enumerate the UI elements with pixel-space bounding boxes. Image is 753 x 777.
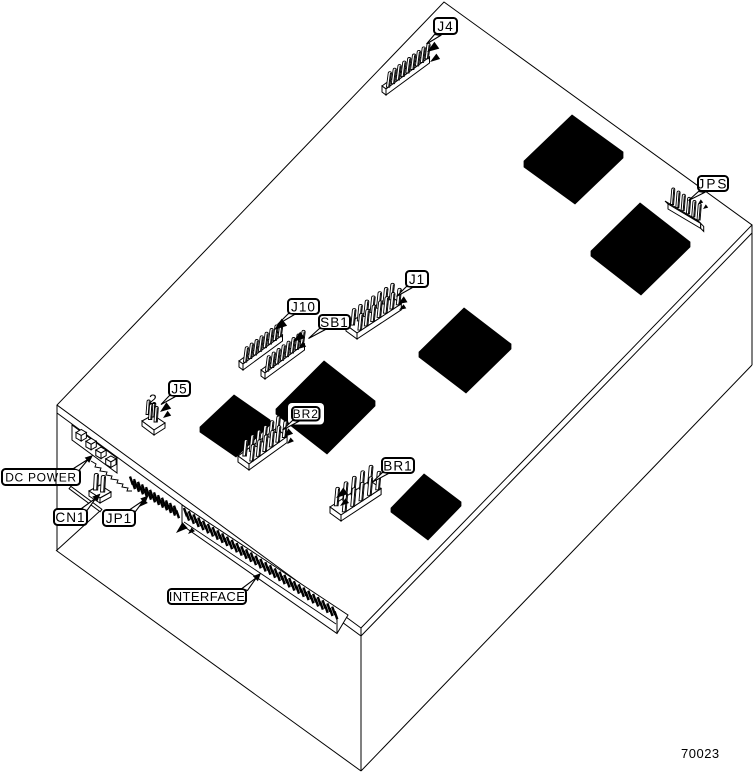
svg-text:JPS: JPS [698, 176, 729, 191]
svg-text:BR1: BR1 [383, 458, 412, 473]
svg-text:J5: J5 [171, 381, 187, 396]
svg-text:J1: J1 [409, 272, 425, 287]
svg-text:J10: J10 [291, 299, 316, 314]
svg-text:JP1: JP1 [106, 511, 132, 526]
svg-text:CN1: CN1 [55, 510, 85, 525]
svg-text:J4: J4 [437, 19, 453, 34]
svg-text:70023: 70023 [681, 746, 720, 761]
svg-text:SB1: SB1 [320, 315, 349, 330]
svg-text:2: 2 [149, 391, 157, 407]
svg-text:INTERFACE: INTERFACE [169, 589, 246, 604]
svg-text:BR2: BR2 [293, 407, 319, 421]
svg-text:DC POWER: DC POWER [5, 470, 77, 484]
